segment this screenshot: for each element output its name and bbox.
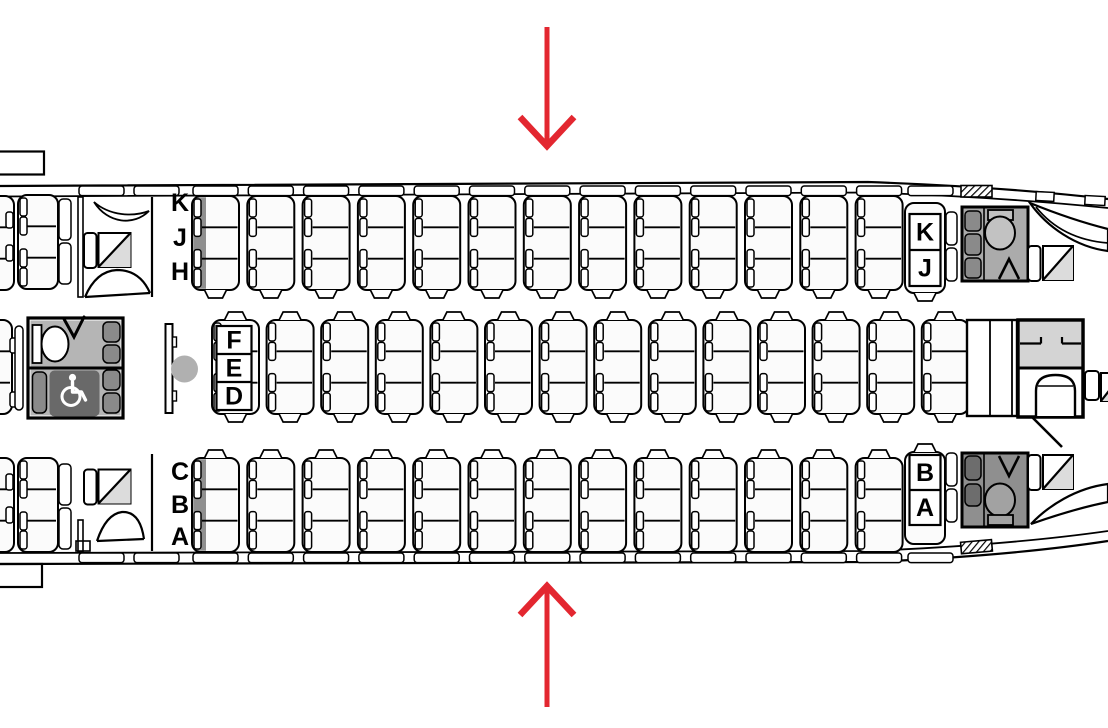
seat-unit-bottom-9[interactable] — [634, 450, 681, 552]
seat-unit-bottom-5[interactable] — [413, 450, 460, 552]
armrest — [869, 342, 876, 360]
armrest — [378, 393, 385, 411]
armrest — [705, 342, 712, 360]
overhead-bin-segment — [691, 553, 736, 563]
seat-console — [552, 312, 574, 320]
wing-root-stub-top — [0, 152, 44, 175]
toilet-icon — [42, 327, 69, 362]
armrest — [194, 461, 201, 479]
armrest — [360, 461, 367, 479]
armrest — [636, 461, 643, 479]
armrest — [542, 374, 549, 392]
armrest — [815, 323, 822, 341]
seat-unit-middle-5[interactable] — [430, 312, 477, 422]
overhead-bin-segment — [1036, 192, 1054, 202]
seat-console — [607, 312, 629, 320]
seat-console — [205, 290, 227, 298]
armrest — [249, 218, 256, 236]
seat-unit-middle-12[interactable] — [813, 312, 860, 422]
seat-unit-top-12[interactable] — [800, 196, 847, 298]
aircraft-seat-map: F E D K J B A — [0, 0, 1108, 728]
seat-console — [315, 450, 337, 458]
armrest — [415, 250, 422, 268]
seat-unit-middle-14[interactable] — [922, 312, 969, 422]
armrest — [471, 199, 478, 217]
seat-unit-middle-10[interactable] — [703, 312, 750, 422]
armrest — [692, 512, 699, 530]
seat-console — [370, 290, 392, 298]
seatback-shell — [59, 243, 71, 284]
seat-console — [813, 290, 835, 298]
seat-console — [647, 450, 669, 458]
seat-console — [315, 290, 337, 298]
round-marker — [171, 356, 198, 383]
armrest — [487, 323, 494, 341]
column-letter-A-right: A — [916, 494, 934, 522]
armrest — [858, 461, 865, 479]
armrest — [581, 531, 588, 549]
armrest — [471, 512, 478, 530]
armrest — [323, 374, 330, 392]
armrest — [378, 342, 385, 360]
armrest — [526, 512, 533, 530]
armrest — [747, 218, 754, 236]
armrest — [651, 323, 658, 341]
seat-console — [702, 450, 724, 458]
seat-unit-top-10[interactable] — [690, 196, 737, 298]
overhead-bin-segment — [746, 186, 791, 196]
sink-icon — [965, 456, 981, 480]
overhead-bin-segment — [857, 186, 902, 196]
armrest — [305, 480, 312, 498]
overhead-bin-segment — [470, 186, 515, 196]
armrest — [360, 480, 367, 498]
armrest — [415, 531, 422, 549]
stabilizer-top-detail-line — [1036, 207, 1108, 243]
seat-console — [279, 414, 301, 422]
armrest — [269, 342, 276, 360]
armrest — [471, 480, 478, 498]
armrest — [924, 323, 931, 341]
crew-jumpseat-bottom-right — [1028, 455, 1073, 490]
armrest — [596, 374, 603, 392]
column-letter-F: F — [226, 327, 241, 355]
armrest — [747, 512, 754, 530]
armrest — [747, 480, 754, 498]
armrest — [705, 393, 712, 411]
overhead-bins-bottom — [79, 553, 953, 563]
armrest — [249, 269, 256, 287]
armrest — [415, 269, 422, 287]
column-letter-D: D — [225, 383, 243, 411]
seat-console — [825, 312, 847, 320]
seat-console — [498, 312, 520, 320]
armrest — [415, 218, 422, 236]
crew-jumpseat-bottom-left — [84, 470, 131, 505]
seat-console — [443, 414, 465, 422]
crew-jumpseat-top-right — [1028, 246, 1073, 281]
overhead-bin-segment — [580, 553, 625, 563]
armrest — [596, 393, 603, 411]
seat-unit-bottom-6[interactable] — [469, 450, 516, 552]
seat-unit-bottom-1[interactable] — [192, 450, 239, 552]
overhead-bin-segment — [470, 553, 515, 563]
armrest — [194, 531, 201, 549]
seat-console — [771, 414, 793, 422]
armrest — [542, 323, 549, 341]
seat-console — [260, 290, 282, 298]
overhead-bin-segment — [414, 186, 459, 196]
seat-unit-middle-3[interactable] — [321, 312, 368, 422]
armrest — [760, 393, 767, 411]
overhead-bin-segment — [635, 553, 680, 563]
armrest — [651, 374, 658, 392]
seatback-shell — [946, 453, 957, 486]
armrest — [815, 393, 822, 411]
armrest — [360, 512, 367, 530]
armrest — [636, 199, 643, 217]
armrest — [692, 218, 699, 236]
seat-unit-bottom-13[interactable] — [856, 450, 903, 552]
armrest — [432, 374, 439, 392]
sink-icon — [965, 211, 981, 231]
armrest — [747, 461, 754, 479]
armrest — [360, 531, 367, 549]
sink-icon — [965, 258, 981, 278]
armrest — [747, 269, 754, 287]
armrest — [581, 250, 588, 268]
overhead-bin-segment — [635, 186, 680, 196]
toilet-tank — [33, 325, 42, 363]
armrest — [305, 531, 312, 549]
door-threshold-hatch-top — [961, 186, 992, 198]
seat-unit-bottom-4[interactable] — [358, 450, 405, 552]
seat-unit-middle-2[interactable] — [267, 312, 314, 422]
trolley-icon — [1036, 375, 1075, 416]
armrest — [651, 393, 658, 411]
seat-console — [758, 290, 780, 298]
armrest — [636, 218, 643, 236]
seat-console — [536, 290, 558, 298]
seat-map-page: F E D K J B A — [0, 0, 1108, 728]
seat-console — [661, 312, 683, 320]
armrest — [581, 512, 588, 530]
armrest — [471, 461, 478, 479]
overhead-bin-segment — [359, 186, 404, 196]
seat-console — [592, 290, 614, 298]
column-letter-A: A — [171, 523, 189, 551]
seat-unit-top-11[interactable] — [745, 196, 792, 298]
overhead-bin-segment — [304, 186, 349, 196]
armrest — [471, 250, 478, 268]
seat-unit-middle-4[interactable] — [376, 312, 423, 422]
door-threshold-hatch-bottom — [961, 540, 993, 554]
seatback-shell — [15, 326, 23, 410]
seat-unit-bottom-2[interactable] — [247, 450, 294, 552]
seat-unit-top-4[interactable] — [358, 196, 405, 298]
business-seat-unit-bottom[interactable] — [18, 458, 71, 552]
overhead-bin-segment — [304, 553, 349, 563]
armrest — [249, 461, 256, 479]
armrest — [526, 199, 533, 217]
armrest — [269, 374, 276, 392]
armrest — [858, 269, 865, 287]
armrest — [526, 461, 533, 479]
seat-unit-middle-11[interactable] — [758, 312, 805, 422]
armrest — [249, 531, 256, 549]
seat-unit-bottom-3[interactable] — [303, 450, 350, 552]
seat-console — [647, 290, 669, 298]
lavatory-top-right — [962, 207, 1028, 281]
armrest — [858, 218, 865, 236]
column-letter-box-FED: F E D — [217, 326, 252, 411]
door-leaf-top — [94, 202, 149, 221]
wing-root-stub-bottom — [0, 564, 42, 587]
galley-counter — [1020, 322, 1081, 368]
seat-console — [880, 414, 902, 422]
seat-unit-bottom-8[interactable] — [579, 450, 626, 552]
seat-console — [771, 312, 793, 320]
armrest — [692, 199, 699, 217]
lavatory-block-left — [28, 317, 123, 418]
armrest — [692, 269, 699, 287]
armrest — [636, 531, 643, 549]
seat-console — [481, 290, 503, 298]
armrest — [323, 342, 330, 360]
armrest — [305, 269, 312, 287]
bulkhead-post-tab — [173, 391, 177, 401]
column-letter-J: J — [173, 224, 187, 252]
overhead-bin-segment — [134, 553, 179, 563]
armrest — [378, 374, 385, 392]
seat-console — [334, 312, 356, 320]
seat-unit-top-13[interactable] — [856, 196, 903, 298]
armrest — [747, 199, 754, 217]
door-swing-arc-top — [85, 270, 150, 297]
seat-unit-bottom-11[interactable] — [745, 450, 792, 552]
seatback-shell — [946, 248, 957, 281]
partition-diagonal-line — [1032, 417, 1062, 447]
armrest — [269, 323, 276, 341]
armrest — [194, 480, 201, 498]
closet-right — [967, 320, 1017, 416]
seat-console — [813, 450, 835, 458]
armrest — [194, 250, 201, 268]
overhead-bin-segment — [1085, 195, 1105, 205]
seat-unit-middle-9[interactable] — [649, 312, 696, 422]
toilet-tank — [988, 515, 1013, 525]
forward-cabin-structures — [0, 195, 198, 552]
seat-unit-top-8[interactable] — [579, 196, 626, 298]
column-letter-J-right: J — [918, 255, 932, 283]
armrest — [802, 269, 809, 287]
armrest — [360, 250, 367, 268]
armrest — [305, 250, 312, 268]
seat-unit-middle-8[interactable] — [594, 312, 641, 422]
overhead-bin-segment — [79, 186, 124, 196]
seat-console — [205, 450, 227, 458]
economy-row-top-KJH — [192, 196, 903, 298]
armrest — [526, 480, 533, 498]
armrest — [305, 218, 312, 236]
column-letter-E: E — [226, 355, 243, 383]
overhead-bin-segment — [801, 553, 846, 563]
economy-row-bottom-CBA — [192, 450, 903, 552]
armrest — [858, 531, 865, 549]
overhead-bin-segment — [79, 553, 124, 563]
overhead-bin-segment — [525, 553, 570, 563]
armrest — [581, 199, 588, 217]
seat-console — [260, 450, 282, 458]
seat-unit-bottom-end-BA[interactable]: B A — [905, 444, 945, 544]
armrest — [487, 374, 494, 392]
seat-unit-middle-13[interactable] — [867, 312, 914, 422]
armrest — [692, 531, 699, 549]
partition-wall — [78, 520, 83, 552]
seat-console — [536, 450, 558, 458]
seat-unit-bottom-10[interactable] — [690, 450, 737, 552]
business-seat-partial-bottom[interactable] — [0, 458, 14, 552]
armrest — [526, 269, 533, 287]
armrest — [692, 480, 699, 498]
business-seat-partial-middle[interactable] — [0, 320, 23, 414]
column-letter-B-right: B — [916, 459, 934, 487]
armrest — [869, 374, 876, 392]
armrest — [692, 461, 699, 479]
seat-unit-top-3[interactable] — [303, 196, 350, 298]
armrest — [924, 374, 931, 392]
lavatory-bottom-right — [962, 453, 1028, 527]
armrest — [760, 374, 767, 392]
armrest — [802, 531, 809, 549]
seat-console — [225, 414, 247, 422]
armrest — [471, 269, 478, 287]
armrest — [581, 269, 588, 287]
armrest — [651, 342, 658, 360]
overhead-bin-segment — [908, 553, 953, 563]
seat-unit-middle-6[interactable] — [485, 312, 532, 422]
toilet-icon — [985, 484, 1015, 517]
armrest — [760, 342, 767, 360]
seat-console — [607, 414, 629, 422]
seat-console — [279, 312, 301, 320]
armrest — [323, 323, 330, 341]
armrest — [526, 250, 533, 268]
column-letter-B: B — [171, 491, 189, 519]
business-seat-partial-top[interactable] — [0, 196, 14, 290]
armrest — [858, 512, 865, 530]
armrest — [194, 199, 201, 217]
armrest — [194, 269, 201, 287]
armrest — [249, 250, 256, 268]
overhead-bin-segment — [359, 553, 404, 563]
seat-console — [426, 290, 448, 298]
armrest — [249, 480, 256, 498]
armrest — [924, 342, 931, 360]
seat-console — [868, 290, 890, 298]
seat-unit-top-1[interactable] — [192, 196, 239, 298]
sink-icon — [965, 234, 981, 255]
column-letter-H: H — [171, 258, 189, 286]
armrest — [802, 512, 809, 530]
armrest — [471, 531, 478, 549]
horizontal-stabilizer-top — [1030, 203, 1108, 251]
overhead-bin-segment — [193, 553, 238, 563]
sink-icon — [103, 370, 120, 390]
armrest — [581, 480, 588, 498]
armrest — [692, 250, 699, 268]
armrest — [323, 393, 330, 411]
seat-unit-top-5[interactable] — [413, 196, 460, 298]
seat-console — [426, 450, 448, 458]
armrest — [858, 199, 865, 217]
armrest — [415, 199, 422, 217]
overhead-bin-segment — [248, 553, 293, 563]
partition-wall — [78, 197, 83, 297]
seat-console — [388, 312, 410, 320]
sink-icon — [965, 484, 981, 506]
armrest — [194, 218, 201, 236]
armrest — [360, 199, 367, 217]
armrest — [869, 323, 876, 341]
seat-console — [498, 414, 520, 422]
seat-console — [661, 414, 683, 422]
seat-unit-bottom-12[interactable] — [800, 450, 847, 552]
armrest — [432, 323, 439, 341]
seat-unit-top-6[interactable] — [469, 196, 516, 298]
armrest — [471, 218, 478, 236]
sink-icon — [103, 345, 120, 363]
armrest — [487, 393, 494, 411]
seat-console — [934, 414, 956, 422]
armrest — [636, 512, 643, 530]
seat-console — [880, 312, 902, 320]
seat-console — [702, 290, 724, 298]
boarding-door-arrow-bottom — [520, 586, 574, 707]
overhead-bin-segment — [801, 186, 846, 196]
overhead-bin-segment — [248, 186, 293, 196]
seat-unit-top-9[interactable] — [634, 196, 681, 298]
seat-console — [868, 450, 890, 458]
armrest — [432, 393, 439, 411]
armrest — [526, 531, 533, 549]
seat-console — [716, 414, 738, 422]
seat-unit-top-2[interactable] — [247, 196, 294, 298]
armrest — [360, 269, 367, 287]
toilet-icon — [985, 217, 1015, 250]
business-seat-unit-top[interactable] — [18, 195, 71, 289]
armrest — [802, 250, 809, 268]
armrest — [747, 531, 754, 549]
seat-unit-top-7[interactable] — [524, 196, 571, 298]
armrest — [858, 250, 865, 268]
seat-console — [592, 450, 614, 458]
seat-unit-middle-7[interactable] — [540, 312, 587, 422]
seat-unit-bottom-7[interactable] — [524, 450, 571, 552]
armrest — [869, 393, 876, 411]
seatback-shell — [946, 212, 957, 245]
armrest — [760, 323, 767, 341]
crew-jumpseat-top-left — [84, 233, 131, 268]
armrest — [542, 342, 549, 360]
seat-unit-top-end-KJ[interactable]: K J — [905, 203, 945, 301]
aft-cabin-structures — [962, 207, 1108, 527]
armrest — [747, 250, 754, 268]
armrest — [305, 461, 312, 479]
boarding-door-arrow-top — [520, 27, 574, 146]
armrest — [194, 512, 201, 530]
armrest — [815, 374, 822, 392]
